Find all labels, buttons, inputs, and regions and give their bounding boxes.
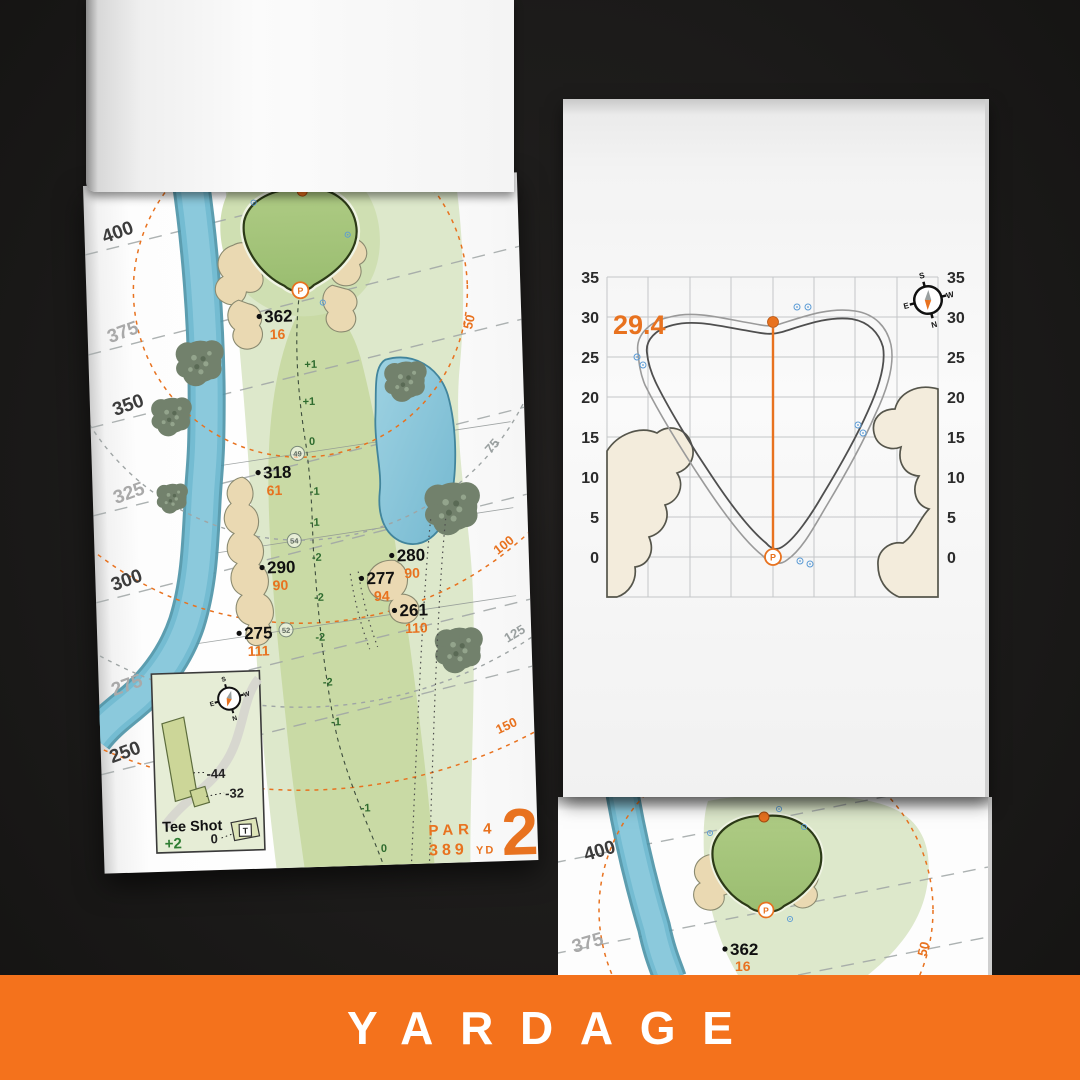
elevation-mark: -1	[310, 517, 320, 529]
contour-label: 350	[110, 390, 147, 420]
yardage-carry: 94	[374, 588, 390, 604]
yardage-dist: 362	[730, 940, 758, 959]
contour-label: 325	[111, 478, 148, 509]
tick-label: 25	[581, 350, 599, 367]
tick-label: 30	[581, 310, 599, 327]
pin-marker: P	[292, 282, 308, 298]
arc-label: 75	[482, 436, 503, 457]
green-detail-chart: P 29.4 35 30 25 20 15 10 5 0 35 30 25 20…	[563, 99, 985, 797]
tick-label: 0	[590, 550, 599, 567]
carry-value: 29.4	[613, 310, 666, 340]
inset-title: Tee Shot	[162, 818, 223, 836]
axis-ticks-right: 35 30 25 20 15 10 5 0	[947, 270, 965, 567]
sprinkler-number: 49	[293, 449, 302, 458]
pin-marker: P	[765, 549, 781, 565]
contour-label: 400	[582, 837, 618, 866]
arc-label: 50	[460, 313, 478, 331]
yards-value: 389	[429, 841, 468, 859]
compass-n: N	[930, 320, 938, 330]
pin-label: P	[770, 553, 776, 563]
yardage-carry: 111	[247, 642, 270, 659]
hole-number: 2	[500, 794, 538, 869]
arc-label: 100	[490, 532, 516, 557]
next-hole-page: P 400 375 50 362 16	[558, 797, 992, 975]
inset-score: +2	[164, 835, 182, 853]
tick-label: 15	[947, 430, 965, 447]
next-hole-map: P 400 375 50 362 16	[558, 797, 988, 975]
yardage-dist: 318	[263, 463, 292, 483]
tick-label: 20	[581, 390, 599, 407]
back-tee-label: -44	[206, 766, 226, 782]
tick-label: 15	[581, 430, 599, 447]
elevation-mark: -2	[314, 592, 324, 604]
river	[622, 797, 670, 975]
tick-label: 20	[947, 390, 965, 407]
compass-s: S	[918, 271, 926, 281]
yardage-dist: 261	[399, 600, 428, 620]
yardage-carry: 110	[405, 619, 428, 636]
compass-w: W	[945, 290, 955, 301]
mid-tee-label: -32	[225, 785, 244, 801]
tick-label: 5	[590, 510, 599, 527]
pin-label: P	[297, 286, 303, 296]
yardage-dist: 290	[267, 558, 296, 578]
yardage-dist: 280	[396, 545, 425, 565]
tick-label: 30	[947, 310, 965, 327]
hole-map: P 49 54 52 +1 +1 0 -1 -1 -	[83, 172, 538, 873]
elevation-mark: -1	[331, 716, 341, 728]
elevation-mark: -2	[323, 676, 333, 688]
tee-shot-inset: -44 -32 0 T Tee Shot +2 S N W E	[151, 670, 265, 853]
banner-title: YARDAGE	[320, 1001, 759, 1055]
elevation-mark: +1	[302, 396, 315, 408]
elevation-mark: -1	[361, 802, 371, 814]
yardage-carry: 90	[272, 577, 288, 593]
yardage-carry: 61	[266, 482, 282, 498]
arc-label: 150	[493, 714, 519, 737]
arc-label: 125	[501, 621, 527, 645]
tick-label: 5	[947, 510, 956, 527]
flipped-blank-page	[86, 0, 514, 192]
elevation-mark: -2	[312, 552, 322, 564]
tick-label: 0	[947, 550, 956, 567]
tick-label: 35	[581, 270, 599, 287]
target-dot	[759, 812, 769, 822]
elevation-mark: 0	[381, 843, 387, 855]
elevation-mark: 0	[309, 436, 315, 448]
yardage-dist: 362	[264, 306, 293, 326]
elevation-mark: -2	[315, 632, 325, 644]
yardage-dist: 277	[366, 568, 395, 588]
compass-e: E	[903, 301, 911, 311]
hole-map-page: P 49 54 52 +1 +1 0 -1 -1 -	[83, 172, 538, 873]
tick-label: 25	[947, 350, 965, 367]
pin-marker: P	[759, 903, 774, 918]
pin-label: P	[763, 906, 769, 916]
yardage-carry: 90	[404, 565, 420, 581]
contour-labels: 400 375	[570, 837, 618, 958]
elevation-mark: -1	[310, 486, 320, 498]
sprinkler-number: 52	[282, 626, 291, 635]
tick-label: 10	[581, 470, 599, 487]
yardage-banner: YARDAGE	[0, 975, 1080, 1080]
green-detail-page: P 29.4 35 30 25 20 15 10 5 0 35 30 25 20…	[563, 99, 989, 797]
par-label: PAR 4	[428, 820, 497, 839]
yards-unit: YD	[476, 844, 496, 857]
tick-label: 35	[947, 270, 965, 287]
axis-ticks-left: 35 30 25 20 15 10 5 0	[581, 270, 599, 567]
arc-label: 50	[914, 940, 932, 958]
yardage-carry: 16	[269, 326, 285, 342]
contour-label: 375	[570, 929, 607, 958]
sprinkler-number: 54	[290, 536, 299, 545]
depth-dot	[768, 317, 779, 328]
yardage-dist: 275	[244, 623, 273, 643]
elevation-mark: +1	[304, 359, 317, 371]
tick-label: 10	[947, 470, 965, 487]
river	[83, 174, 218, 738]
yardage-carry: 16	[735, 958, 751, 974]
